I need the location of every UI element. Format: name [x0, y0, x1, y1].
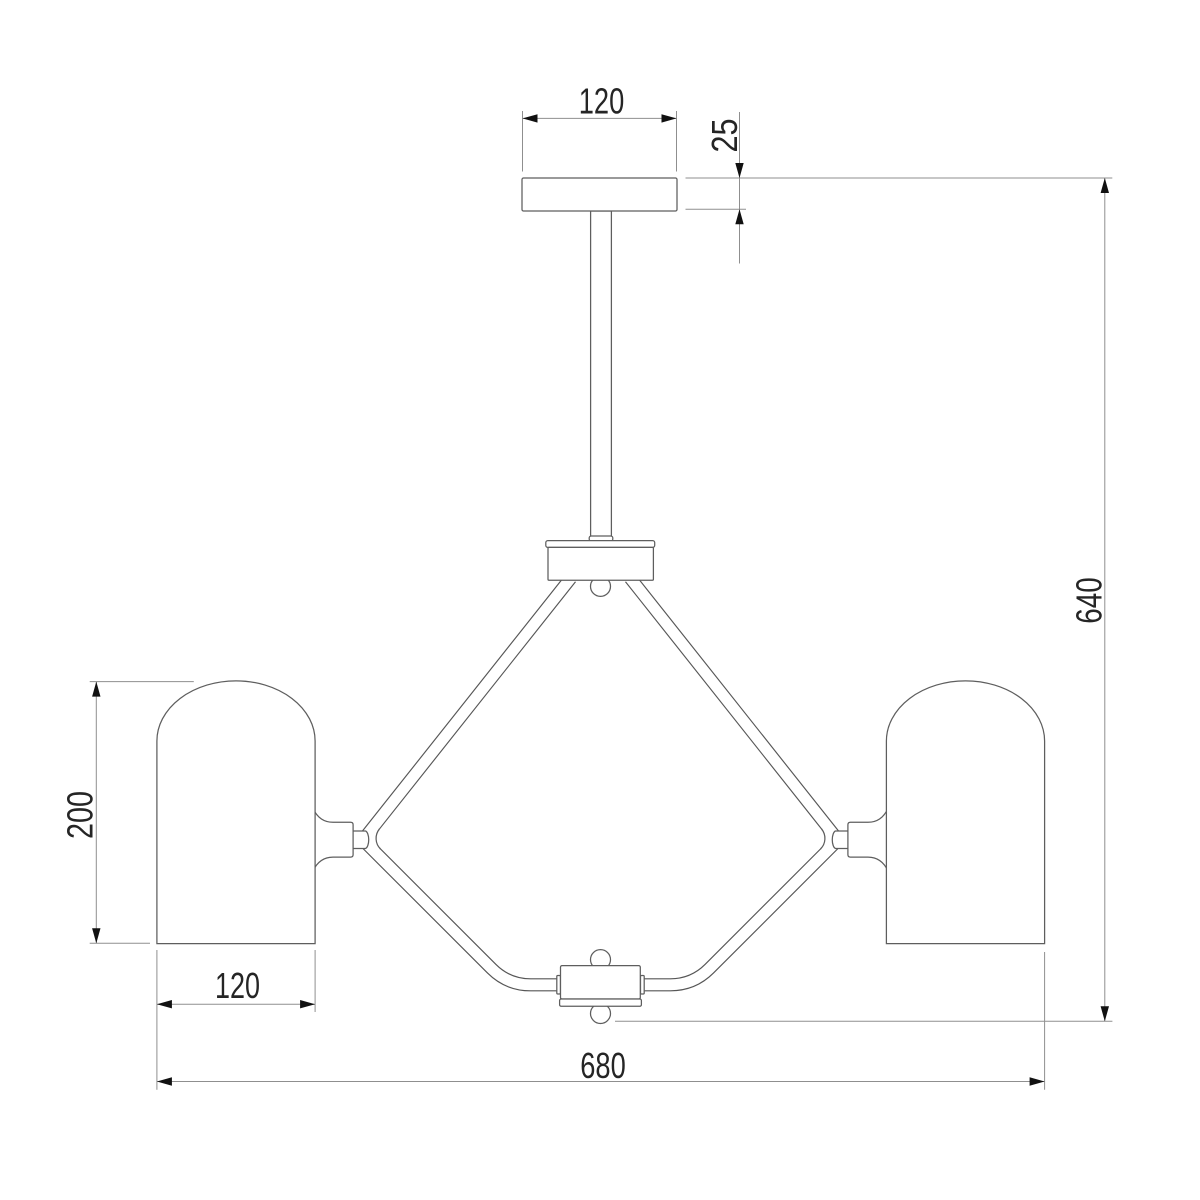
svg-text:120: 120 — [579, 80, 625, 121]
svg-text:120: 120 — [215, 965, 260, 1006]
svg-text:680: 680 — [580, 1045, 626, 1086]
svg-text:200: 200 — [60, 791, 101, 839]
svg-text:640: 640 — [1069, 577, 1110, 624]
svg-text:25: 25 — [704, 119, 745, 153]
